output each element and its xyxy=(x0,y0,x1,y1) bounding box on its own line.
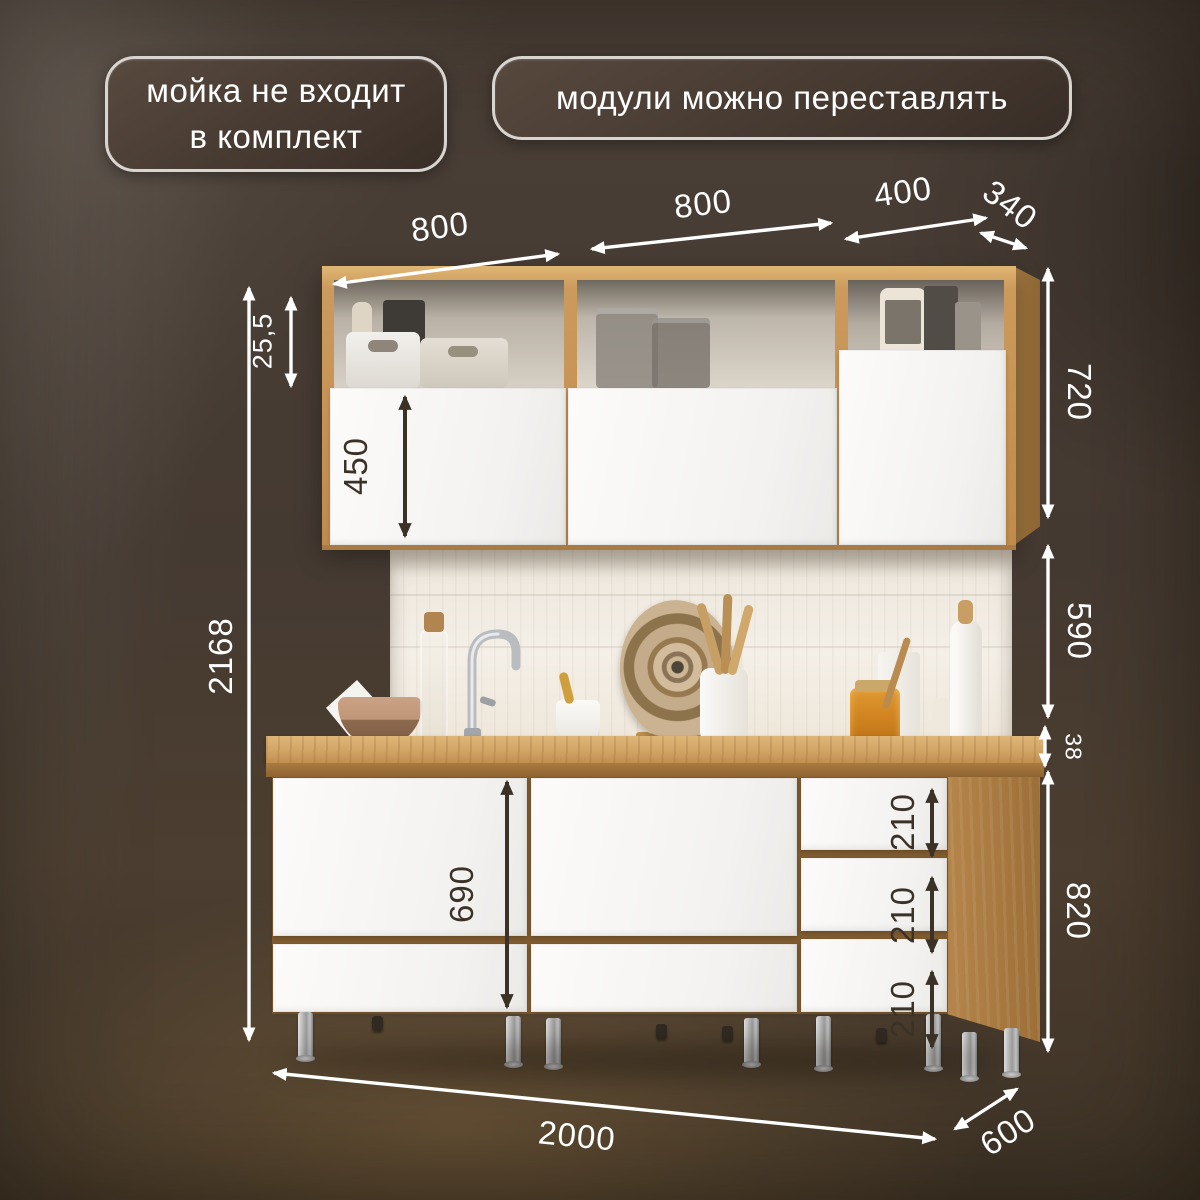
arrow-width-800-middle xyxy=(592,223,831,249)
dim-label-690: 690 xyxy=(443,865,481,923)
dim-label-400: 400 xyxy=(872,169,935,215)
arrow-width-800-left xyxy=(334,254,558,284)
arrow-width-400 xyxy=(846,218,986,239)
dim-label-210-3: 210 xyxy=(884,980,922,1038)
dim-label-590: 590 xyxy=(1060,602,1098,660)
dim-label-210-1: 210 xyxy=(884,793,922,851)
product-image: мойка не входит в комплект модули можно … xyxy=(0,0,1200,1200)
dim-label-800-middle: 800 xyxy=(672,182,734,226)
dim-label-820: 820 xyxy=(1059,882,1097,940)
dimension-arrows xyxy=(0,0,1200,1200)
dim-label-2000: 2000 xyxy=(537,1113,618,1158)
dim-label-720: 720 xyxy=(1060,363,1098,421)
dim-label-25-5: 25,5 xyxy=(248,313,279,370)
dim-label-38: 38 xyxy=(1060,733,1087,761)
dim-label-450: 450 xyxy=(337,437,375,495)
dim-label-800-left: 800 xyxy=(409,204,472,249)
dim-label-2168: 2168 xyxy=(202,617,240,694)
dim-label-210-2: 210 xyxy=(884,886,922,944)
